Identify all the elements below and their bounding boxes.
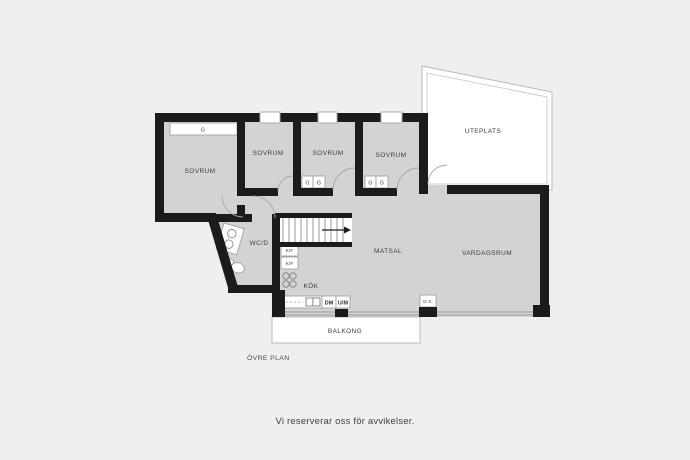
wall-bedroom1-right [237,122,245,196]
wardrobe-label: G [317,181,321,187]
wall-post-bottom-mid [335,309,348,317]
oven-microwave-label: U/M [338,301,349,307]
wall-bedroom2-bottom [245,188,278,196]
wardrobe-label: G [368,181,372,187]
balcony-label: BALKONG [328,328,362,335]
wall-livingroom-top [447,185,549,194]
floor-plan-page: G SOVRUM SOVRUM SOVRUM SOVRUM G G G G UT… [0,0,690,460]
wall-post-fireplace [419,307,437,317]
bedroom3-label: SOVRUM [313,150,344,157]
dining-room-label: MATSAL [374,248,402,255]
footer-disclaimer: Vi reserverar oss för avvikelser. [276,416,415,427]
wall-right [540,185,549,317]
wardrobe-label: G [201,128,205,134]
stairs [277,216,352,244]
wall-bedroom1-bottom [155,213,212,222]
patio-label: UTEPLATS [465,128,502,135]
dishwasher-label: DM [325,301,334,307]
fridge-label: K/F [286,248,294,254]
wall-bedroom4-bottom [363,188,397,196]
kitchen-label: KÖK [304,282,319,290]
wall-left [155,113,164,222]
plan-title: ÖVRE PLAN [247,354,290,362]
freezer-label: K/F [286,261,294,267]
wall-post-bottom-left [272,290,285,317]
wall-bedroom4-right [419,113,428,194]
wall-bathroom-right [272,214,280,292]
wall-bedroom3-4 [355,122,363,196]
wall-stairs-top [276,213,352,218]
fireplace-label: O.S. [423,299,433,305]
wall-post-bottom-right [533,305,550,317]
wall-bathroom-top [214,214,252,222]
wardrobe-label: G [305,181,309,187]
bedroom2-label: SOVRUM [253,150,284,157]
wall-bedroom2-3 [293,122,301,196]
bathroom-label: WC/D [250,240,269,247]
bedroom4-label: SOVRUM [376,152,407,159]
floor-plan-drawing: G SOVRUM SOVRUM SOVRUM SOVRUM G G G G UT… [0,0,690,460]
living-room-label: VARDAGSRUM [462,250,512,257]
bedroom1-label: SOVRUM [185,168,216,175]
wall-bedroom3-bottom [298,188,333,196]
window [260,112,280,123]
wardrobe-label: G [380,181,384,187]
wall-bathroom-bottom [228,285,272,293]
wall-stairs-bottom [276,242,352,247]
window [318,112,337,123]
window [381,112,402,123]
